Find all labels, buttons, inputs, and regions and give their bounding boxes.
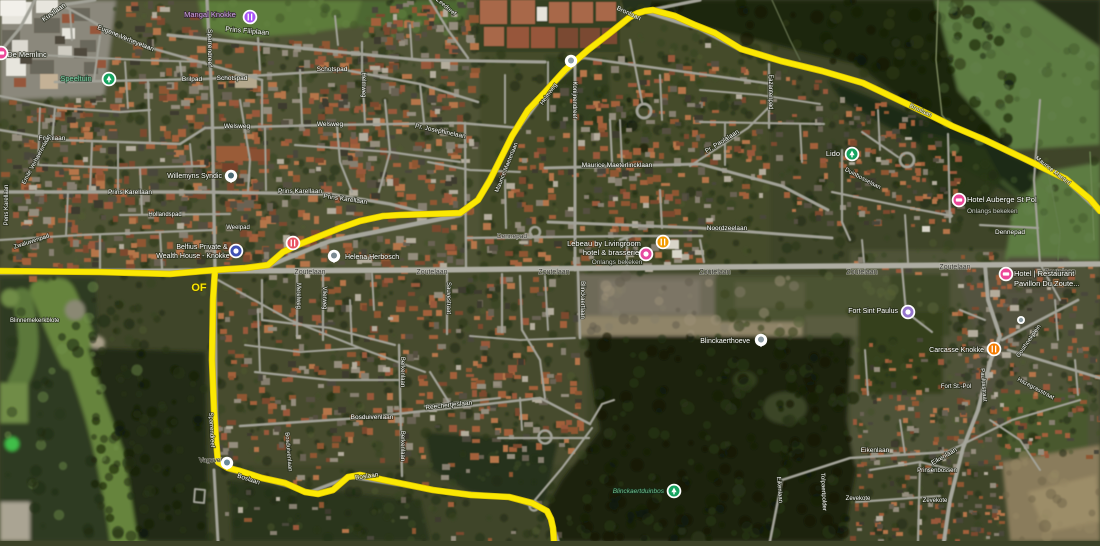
svg-text:Brilpad: Brilpad	[182, 76, 203, 83]
svg-text:Blinnemekerkblote: Blinnemekerkblote	[10, 318, 60, 324]
svg-text:Zevekote: Zevekote	[846, 496, 871, 502]
svg-text:Hotel Auberge St Pol: Hotel Auberge St Pol	[967, 195, 1037, 204]
svg-text:Carcasse Knokke: Carcasse Knokke	[929, 347, 984, 354]
svg-text:Noordzeelaan: Noordzeelaan	[707, 225, 748, 232]
svg-text:De Memlinc: De Memlinc	[7, 50, 47, 59]
svg-text:Lido: Lido	[826, 149, 840, 158]
svg-text:Onlangs bekeken: Onlangs bekeken	[592, 259, 643, 266]
svg-text:Belfius Private &: Belfius Private &	[176, 244, 228, 251]
svg-text:Prins Karellaan: Prins Karellaan	[108, 189, 152, 196]
svg-text:Blinckaerthoeve: Blinckaerthoeve	[700, 338, 750, 345]
svg-text:Pens Karellaan: Pens Karellaan	[4, 185, 10, 226]
svg-text:Speeltuin: Speeltuin	[60, 74, 91, 83]
svg-text:Sauvestraat: Sauvestraat	[445, 282, 451, 314]
svg-text:Fort Sint Paulus: Fort Sint Paulus	[848, 308, 898, 315]
svg-text:Zoutelaan: Zoutelaan	[939, 264, 970, 271]
svg-text:Fazantenpad: Fazantenpad	[767, 74, 773, 109]
svg-text:Zevekote: Zevekote	[923, 498, 948, 504]
svg-text:Wealth House - Knokke: Wealth House - Knokke	[156, 253, 230, 260]
svg-text:Merelweg: Merelweg	[295, 283, 301, 309]
svg-text:Fort St.-Pol: Fort St.-Pol	[941, 384, 971, 390]
svg-text:Welsweg: Welsweg	[224, 123, 251, 130]
svg-text:Lebeau by Livingroom: Lebeau by Livingroom	[567, 239, 641, 248]
svg-text:Willemyns Syndic: Willemyns Syndic	[167, 173, 222, 180]
svg-text:Eikenlaan: Eikenlaan	[861, 447, 890, 454]
svg-text:Hotel | Restaurant: Hotel | Restaurant	[1014, 269, 1075, 278]
svg-text:Dennepad: Dennepad	[995, 229, 1025, 236]
svg-text:Schotspad: Schotspad	[317, 66, 348, 73]
svg-text:Welsweg: Welsweg	[317, 121, 344, 128]
svg-text:Pavillon Du Zoute...: Pavillon Du Zoute...	[1014, 279, 1079, 288]
svg-text:hotel & brasserie: hotel & brasserie	[583, 248, 639, 257]
svg-text:Zoutelaan: Zoutelaan	[699, 269, 730, 276]
svg-text:Zoutelaan: Zoutelaan	[846, 269, 877, 276]
svg-text:Zoutelaan: Zoutelaan	[416, 269, 447, 276]
svg-text:Konijnendreef: Konijnendreef	[571, 81, 577, 118]
svg-text:Berkenlaan: Berkenlaan	[399, 431, 405, 461]
svg-text:OF: OF	[191, 282, 207, 294]
svg-text:Bosduivenlaan: Bosduivenlaan	[351, 414, 394, 421]
svg-text:Helena Herbosch: Helena Herbosch	[345, 254, 399, 261]
svg-text:Zoutelaan: Zoutelaan	[294, 269, 325, 276]
svg-text:Vlierweg: Vlierweg	[321, 286, 327, 309]
svg-text:Helmweg: Helmweg	[360, 72, 366, 97]
svg-text:Vagevel: Vagevel	[199, 457, 223, 464]
svg-text:Prins Karellaan: Prins Karellaan	[278, 188, 322, 195]
svg-text:Schotspad: Schotspad	[217, 75, 248, 82]
svg-text:Sparrendreef: Sparrendreef	[206, 29, 213, 67]
svg-text:Berkenlaan: Berkenlaan	[399, 357, 405, 387]
svg-text:Mangal Knokke: Mangal Knokke	[184, 10, 236, 19]
svg-text:Blinckaertlaan: Blinckaertlaan	[579, 281, 585, 319]
svg-text:Maurice Maeterlincklaan: Maurice Maeterlincklaan	[582, 162, 653, 169]
svg-text:Dennepad: Dennepad	[497, 233, 527, 240]
svg-text:Onlangs bekeken: Onlangs bekeken	[967, 208, 1018, 215]
svg-text:Weelpad: Weelpad	[226, 225, 250, 231]
svg-text:Prinsenbossen: Prinsenbossen	[917, 468, 957, 474]
svg-text:Zoutelaan: Zoutelaan	[538, 269, 569, 276]
svg-text:Blinckaertduinbos: Blinckaertduinbos	[613, 488, 665, 495]
svg-text:Hollandspad: Hollandspad	[148, 212, 181, 218]
